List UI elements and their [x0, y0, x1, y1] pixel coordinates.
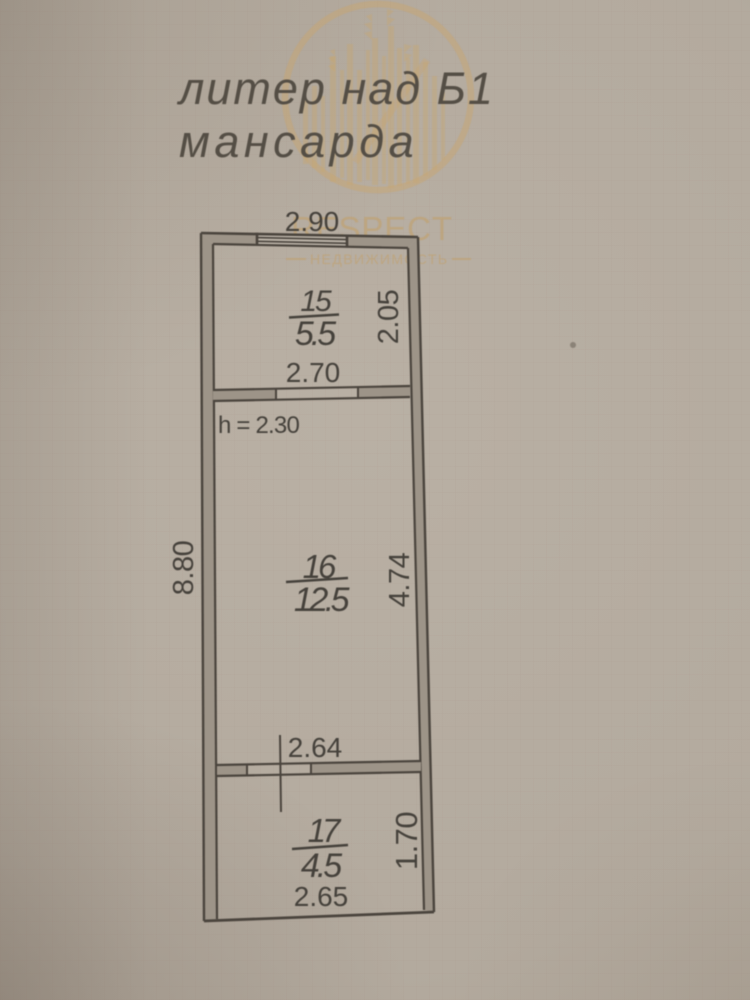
svg-text:2.05: 2.05 [373, 290, 405, 344]
svg-text:2.90: 2.90 [285, 206, 340, 237]
svg-text:17: 17 [308, 812, 342, 849]
svg-text:5.5: 5.5 [295, 315, 336, 353]
svg-text:4.5: 4.5 [301, 847, 342, 885]
svg-text:h = 2.30: h = 2.30 [218, 412, 299, 439]
svg-text:мансарда: мансарда [179, 116, 418, 167]
svg-text:12.5: 12.5 [294, 581, 350, 619]
svg-text:НЕДВИЖИМОСТЬ: НЕДВИЖИМОСТЬ [310, 251, 450, 267]
svg-text:15: 15 [300, 285, 332, 318]
svg-text:8.80: 8.80 [168, 541, 200, 595]
svg-text:4.74: 4.74 [384, 552, 416, 607]
svg-text:2.65: 2.65 [294, 881, 349, 912]
svg-text:1.70: 1.70 [389, 812, 424, 871]
svg-text:2.64: 2.64 [288, 732, 343, 763]
svg-text:литер над Б1: литер над Б1 [176, 63, 495, 114]
svg-text:2.70: 2.70 [286, 357, 341, 388]
